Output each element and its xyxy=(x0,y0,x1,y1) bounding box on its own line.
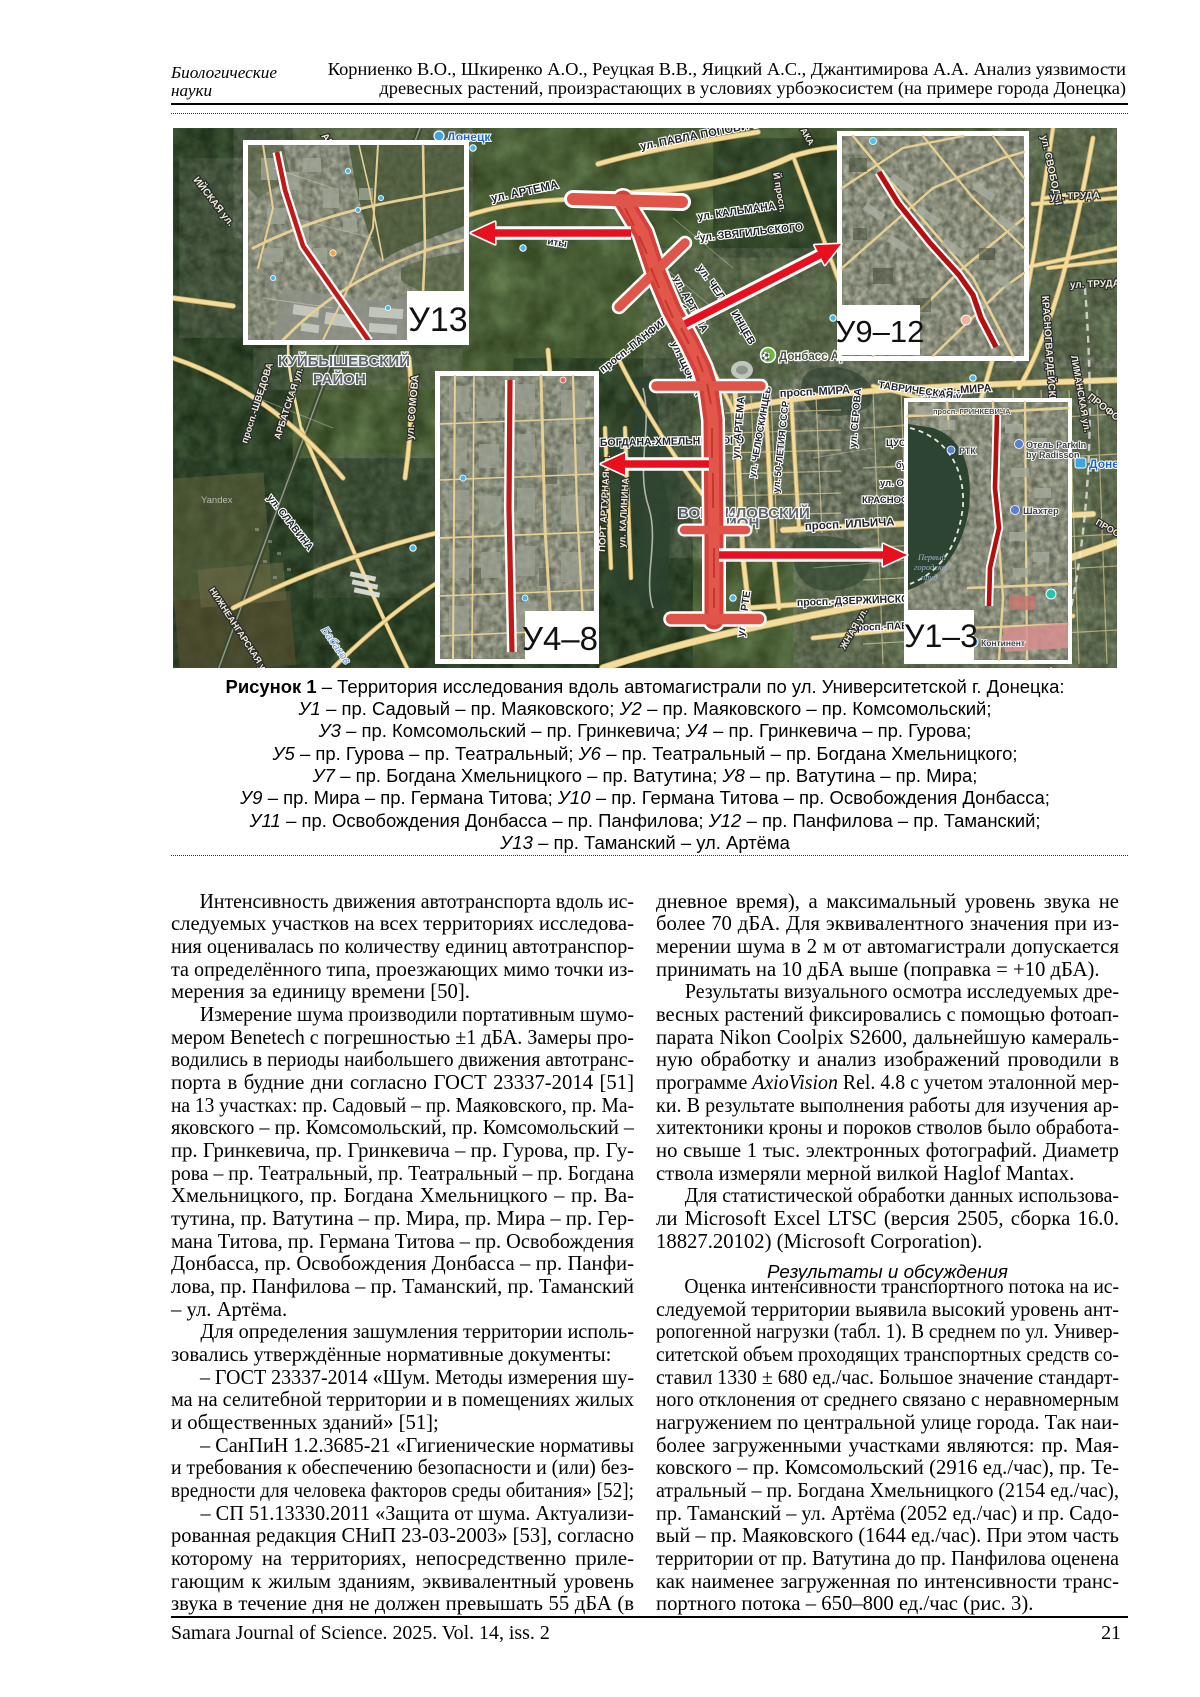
svg-text:У1–3: У1–3 xyxy=(904,618,978,654)
svg-text:Первый: Первый xyxy=(917,552,947,562)
svg-text:У9–12: У9–12 xyxy=(836,314,925,349)
svg-text:Отель Park In: Отель Park In xyxy=(1026,440,1086,450)
svg-text:пруд: пруд xyxy=(921,572,938,582)
svg-text:Yandex: Yandex xyxy=(201,495,233,506)
svg-text:Шахтер: Шахтер xyxy=(1023,506,1059,517)
svg-text:ул. ТРУДА: ул. ТРУДА xyxy=(1050,190,1100,203)
svg-text:просп. ГРИНКЕВИЧА: просп. ГРИНКЕВИЧА xyxy=(933,407,1011,416)
svg-text:У13: У13 xyxy=(408,301,467,339)
svg-text:Донецк: Донецк xyxy=(1089,457,1117,471)
svg-text:РАЙОН: РАЙОН xyxy=(313,370,366,388)
svg-text:Континент: Континент xyxy=(981,638,1025,648)
svg-text:ул. ТРУДА: ул. ТРУДА xyxy=(1070,278,1117,291)
svg-text:⚽: ⚽ xyxy=(760,351,771,361)
svg-text:by Radisson: by Radisson xyxy=(1026,450,1080,460)
svg-text:КУЙБЫШЕВСКИЙ: КУЙБЫШЕВСКИЙ xyxy=(278,352,410,370)
svg-text:городской: городской xyxy=(914,562,951,572)
svg-text:РТК: РТК xyxy=(959,446,976,456)
svg-text:У4–8: У4–8 xyxy=(522,620,598,657)
